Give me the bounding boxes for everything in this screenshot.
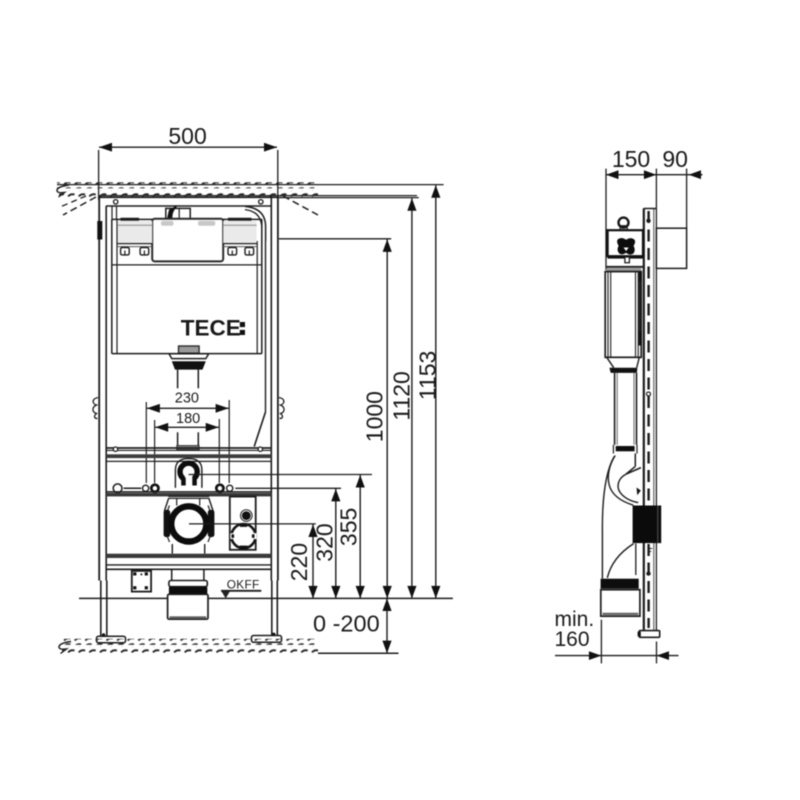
svg-text:OKFF: OKFF bbox=[227, 578, 260, 592]
svg-text:160: 160 bbox=[555, 628, 590, 651]
svg-text:355: 355 bbox=[335, 508, 361, 546]
svg-text:500: 500 bbox=[168, 123, 206, 149]
svg-text:150: 150 bbox=[612, 146, 650, 172]
svg-text:180: 180 bbox=[176, 411, 200, 427]
svg-text:320: 320 bbox=[312, 523, 338, 561]
svg-text:230: 230 bbox=[175, 391, 199, 407]
svg-text:1000: 1000 bbox=[361, 391, 387, 442]
svg-text:220: 220 bbox=[286, 543, 312, 581]
svg-text:0 -200: 0 -200 bbox=[313, 611, 380, 637]
svg-text:1153: 1153 bbox=[415, 351, 441, 400]
svg-text:1120: 1120 bbox=[388, 371, 414, 420]
svg-text:90: 90 bbox=[662, 146, 688, 172]
svg-text:TECE: TECE bbox=[181, 315, 241, 340]
